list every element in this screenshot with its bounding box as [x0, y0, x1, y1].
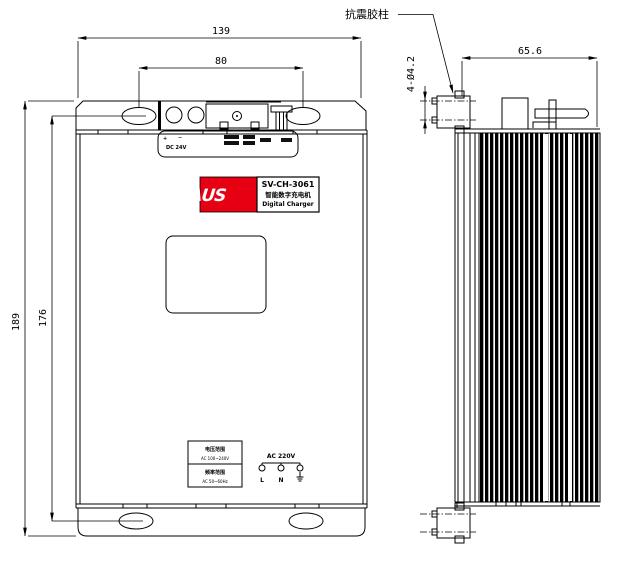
- spec-table: 电压范围 AC 100~240V 频率范围 AC 50~60Hz: [188, 441, 242, 487]
- display-window: [166, 236, 266, 313]
- mount-hole-top-right: [286, 108, 320, 125]
- side-view: 抗震胶柱 65.6 4-Ø4.2: [345, 7, 600, 543]
- vent-hole-2: [188, 107, 204, 123]
- vent-hole-1: [166, 107, 182, 123]
- dc-panel: + − DC 24V: [158, 131, 298, 157]
- ac-input: AC 220V L N: [259, 453, 304, 484]
- shock-pad-label: 抗震胶柱: [345, 7, 389, 21]
- brand-logo: ΛUS: [186, 186, 227, 206]
- terminal-l: [259, 465, 265, 471]
- dim-holes-text: 4-Ø4.2: [405, 56, 417, 92]
- top-mounting-bracket: [76, 101, 366, 130]
- model-number: SV-CH-3061: [262, 180, 315, 189]
- technical-drawing-charger: + − DC 24V ΛUS SV-CH-3061 智能数字充电机 Digita…: [0, 0, 623, 572]
- mount-hole-bottom-right: [289, 513, 323, 529]
- component-block: [502, 98, 528, 129]
- side-connector: [271, 106, 292, 130]
- shock-post-top: [455, 91, 464, 98]
- product-name-en: Digital Charger: [262, 201, 313, 208]
- dim-depth-65-6: 65.6: [462, 46, 597, 127]
- front-view: + − DC 24V ΛUS SV-CH-3061 智能数字充电机 Digita…: [11, 26, 367, 536]
- spec-row2-value: AC 50~60Hz: [202, 479, 227, 484]
- dim-hole-span-80: 80: [139, 56, 303, 108]
- earth-ground-symbol: [297, 472, 304, 481]
- ac-voltage-label: AC 220V: [267, 453, 296, 460]
- dim-65-6-text: 65.6: [518, 46, 542, 57]
- plug-barrel: [535, 109, 589, 118]
- side-bottom-bracket: [420, 502, 476, 543]
- spec-row1-header: 电压范围: [205, 446, 225, 453]
- shock-post-bottom2: [455, 536, 464, 543]
- drawing-svg: + − DC 24V ΛUS SV-CH-3061 智能数字充电机 Digita…: [0, 0, 623, 572]
- bottom-mounting-bracket: [78, 508, 365, 536]
- plus-label: +: [163, 136, 167, 142]
- terminal-block: [206, 102, 281, 129]
- dim-139-text: 139: [212, 26, 230, 37]
- dim-mount-holes: 4-Ø4.2: [405, 56, 425, 134]
- heatsink-fins: [479, 133, 600, 502]
- dim-189-text: 189: [11, 313, 22, 331]
- terminal-n-label: N: [278, 477, 283, 484]
- product-name-cn: 智能数字充电机: [265, 190, 311, 199]
- minus-label: −: [178, 135, 182, 141]
- nameplate: ΛUS SV-CH-3061 智能数字充电机 Digital Charger: [186, 177, 319, 212]
- terminal-l-label: L: [260, 477, 264, 484]
- port-label-marks: [224, 135, 292, 145]
- spec-row2-header: 频率范围: [205, 469, 225, 476]
- connector-pin: [549, 100, 556, 129]
- connector-foot: [533, 122, 556, 128]
- dim-80-text: 80: [215, 56, 227, 67]
- side-top-bracket: [420, 91, 476, 133]
- terminal-pe: [297, 465, 303, 471]
- side-top-components: [502, 98, 589, 129]
- dim-176-text: 176: [38, 309, 49, 327]
- dim-hole-span-176: 176: [38, 116, 146, 521]
- spec-row1-value: AC 100~240V: [201, 456, 229, 461]
- side-case: [455, 129, 600, 506]
- dc24v-label: DC 24V: [166, 145, 187, 151]
- terminal-n: [278, 465, 284, 471]
